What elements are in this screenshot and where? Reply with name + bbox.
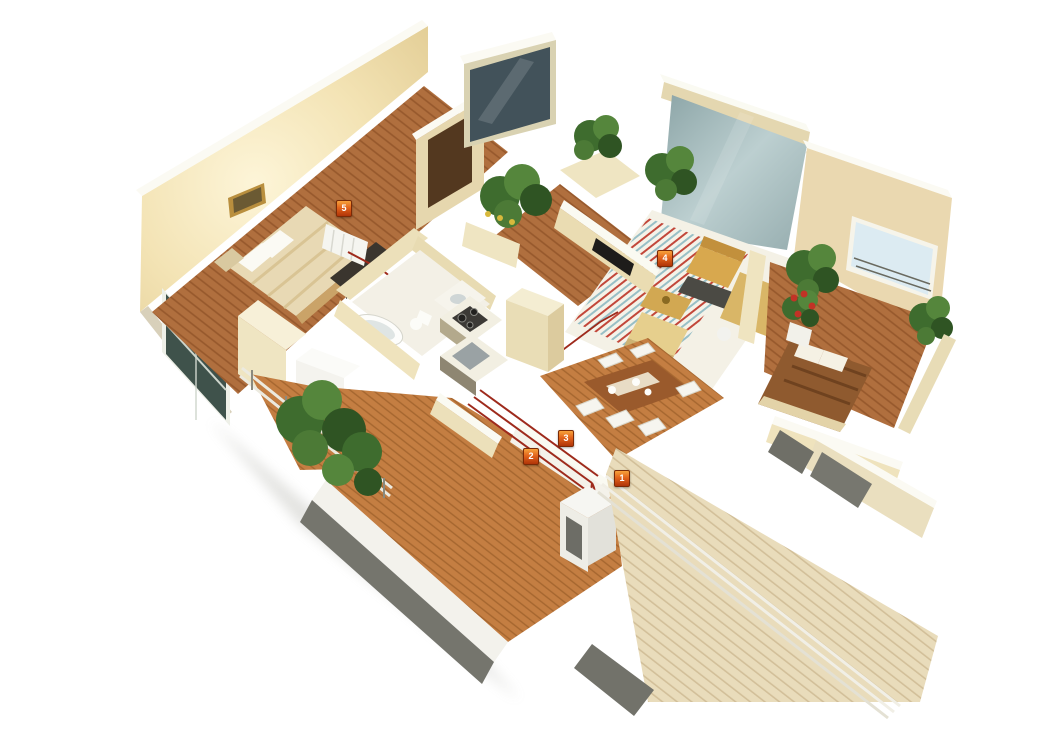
apartment-3d-plan: 1 2 3 4 5 xyxy=(0,0,1060,740)
planter-box xyxy=(560,150,640,198)
side-table xyxy=(717,327,731,341)
entry-window xyxy=(460,32,556,148)
marker-2: 2 xyxy=(523,448,539,465)
tall-cabinet xyxy=(506,288,564,372)
marker-3: 3 xyxy=(558,430,574,447)
plan-rendering xyxy=(0,0,1060,740)
marker-5: 5 xyxy=(336,200,352,217)
marker-1: 1 xyxy=(614,470,630,487)
sink-counter xyxy=(440,334,508,396)
marker-4: 4 xyxy=(657,250,673,267)
